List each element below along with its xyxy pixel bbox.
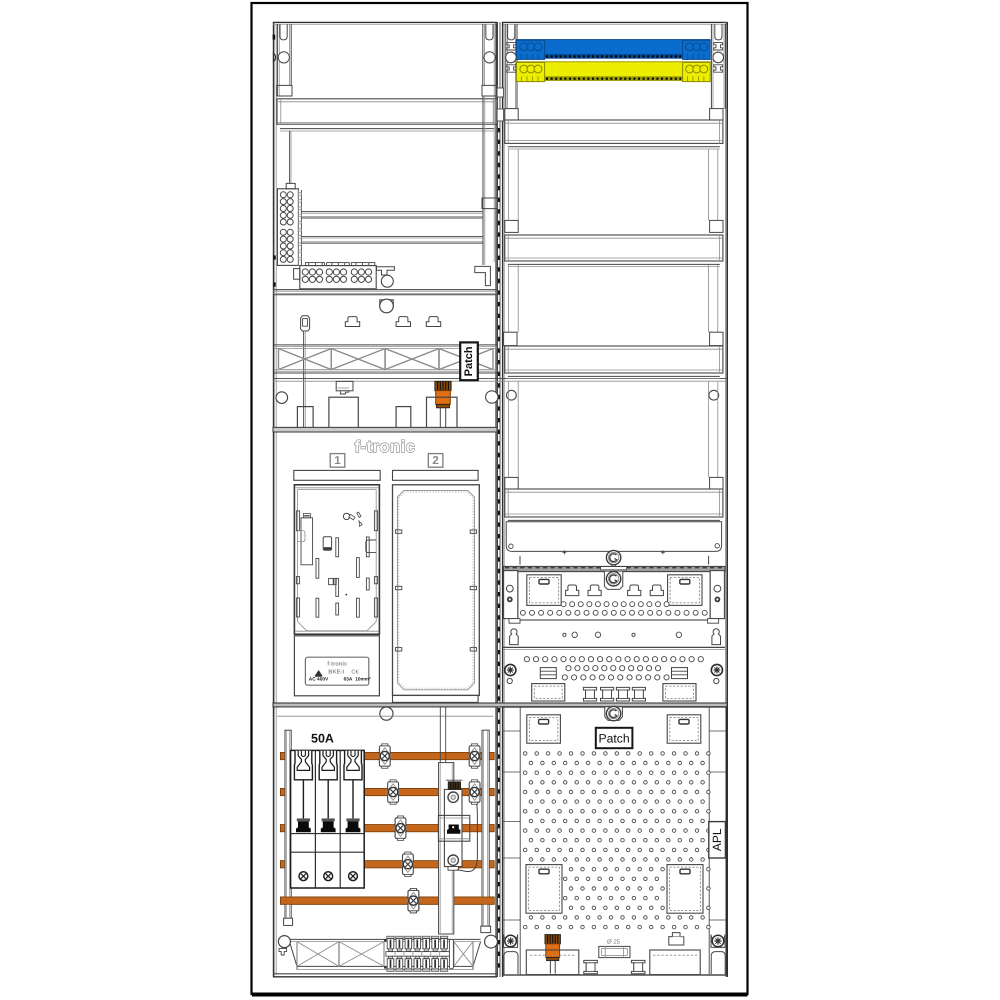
- svg-text:f-tronic: f-tronic: [327, 660, 348, 667]
- svg-text:f-tronic: f-tronic: [355, 438, 416, 456]
- svg-text:50A: 50A: [311, 732, 334, 746]
- svg-text:Patch: Patch: [463, 346, 475, 376]
- svg-text:BKE-I: BKE-I: [328, 669, 344, 675]
- svg-text:1: 1: [334, 455, 341, 467]
- svg-text:C€: C€: [351, 669, 359, 675]
- svg-text:AC 400V: AC 400V: [309, 676, 329, 682]
- svg-text:Ø 25: Ø 25: [607, 939, 621, 946]
- svg-text:10mm²: 10mm²: [355, 676, 371, 682]
- svg-text:63A: 63A: [344, 676, 353, 682]
- svg-text:APL: APL: [710, 828, 724, 851]
- svg-text:Patch: Patch: [599, 731, 630, 745]
- svg-text:2: 2: [432, 455, 438, 467]
